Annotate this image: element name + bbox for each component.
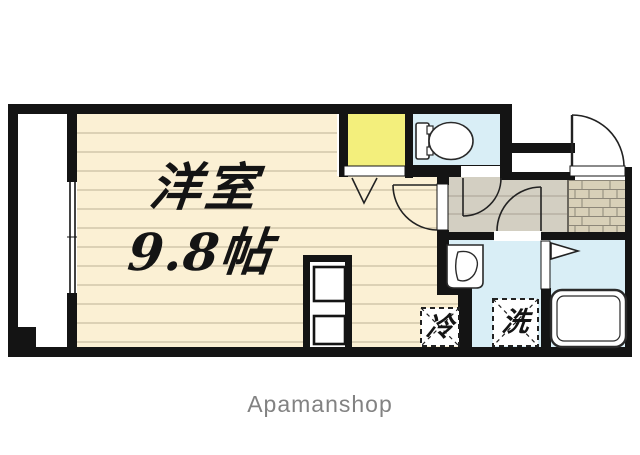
bathroom-folding-door bbox=[541, 241, 550, 289]
entrance-sill bbox=[570, 166, 625, 176]
floorplan-drawing bbox=[0, 0, 640, 455]
kitchen-stove-icon bbox=[303, 255, 352, 347]
wall-bottom bbox=[8, 347, 632, 357]
toilet-doorway bbox=[461, 166, 500, 177]
washer-space-label: 洗 bbox=[491, 299, 541, 346]
brand-watermark: Apamanshop bbox=[0, 391, 640, 418]
wall-hall-left-upper bbox=[437, 172, 449, 185]
balcony-window-icon bbox=[67, 181, 77, 294]
main-room-size: 9.8帖 bbox=[92, 224, 308, 282]
wall-window-upper bbox=[67, 108, 77, 182]
floorplan-canvas: 洋室 9.8帖 冷 洗 Apamanshop bbox=[0, 0, 640, 455]
wall-top-entrance bbox=[512, 143, 575, 153]
refrigerator-space-label: 冷 bbox=[419, 308, 461, 346]
wall-top bbox=[8, 104, 512, 114]
closet-track bbox=[344, 166, 405, 176]
wall-washroom-left bbox=[458, 293, 472, 347]
main-room-name: 洋室 bbox=[107, 160, 303, 216]
balcony-step-block bbox=[18, 327, 36, 352]
toilet-icon bbox=[416, 123, 473, 160]
closet-floor bbox=[345, 114, 405, 167]
sink-icon bbox=[447, 245, 483, 288]
wall-window-lower bbox=[67, 293, 77, 352]
entrance-door-arc bbox=[572, 115, 624, 166]
wall-hall-top-right bbox=[500, 172, 575, 180]
wall-left bbox=[8, 104, 18, 357]
main-doorway bbox=[437, 184, 448, 230]
wall-toilet-right bbox=[500, 104, 512, 180]
wall-bath-divider bbox=[541, 288, 551, 350]
bathtub-icon bbox=[551, 290, 626, 347]
washroom-doorway bbox=[494, 231, 541, 241]
entrance-tile-floor bbox=[568, 180, 625, 232]
